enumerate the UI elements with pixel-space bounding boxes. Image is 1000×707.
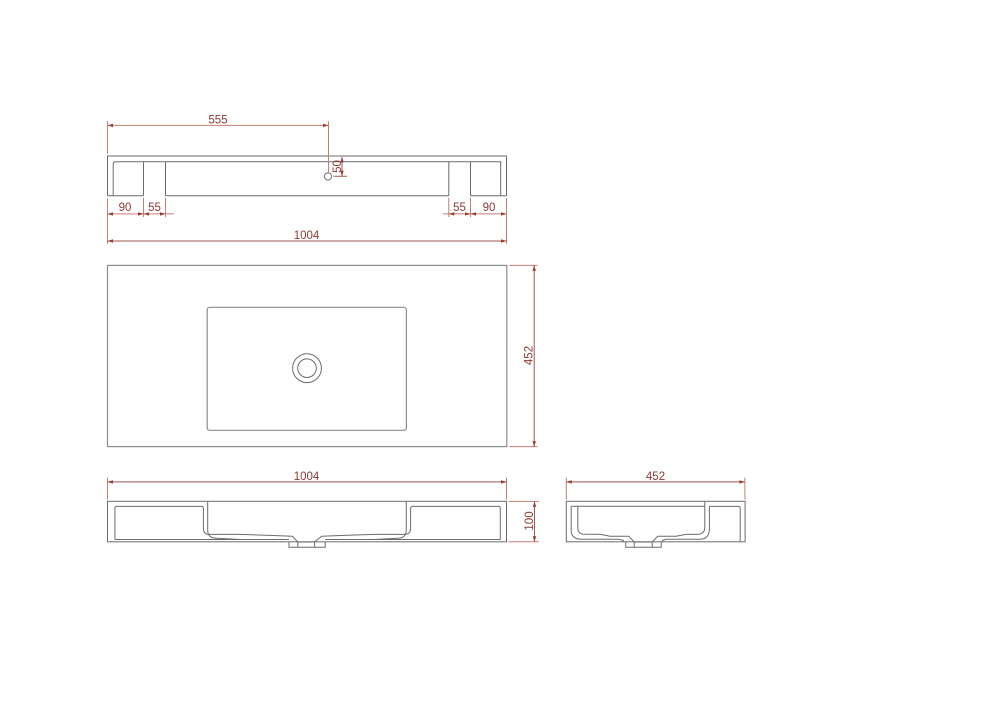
svg-text:555: 555 [208, 114, 227, 126]
svg-text:1004: 1004 [294, 471, 320, 483]
svg-text:1004: 1004 [294, 230, 320, 242]
svg-text:452: 452 [646, 471, 665, 483]
svg-text:55: 55 [453, 202, 466, 214]
svg-text:90: 90 [119, 202, 132, 214]
svg-text:50: 50 [332, 160, 344, 173]
svg-text:100: 100 [524, 511, 536, 530]
svg-text:452: 452 [524, 346, 536, 365]
svg-text:90: 90 [483, 202, 496, 214]
svg-text:55: 55 [148, 202, 161, 214]
